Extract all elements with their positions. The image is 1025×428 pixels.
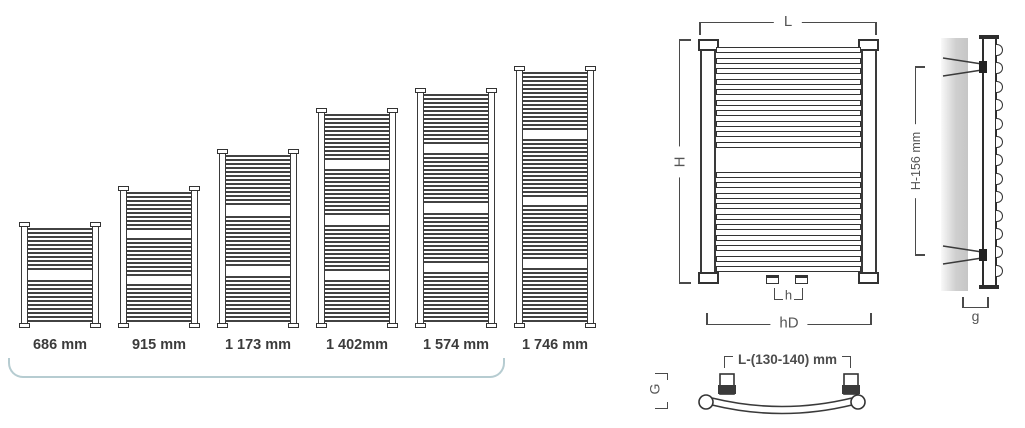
radiator-bar: [424, 320, 488, 322]
radiator-bar: [424, 312, 488, 314]
radiator-bar: [523, 237, 587, 239]
radiator-bar: [226, 292, 290, 294]
radiator-bar: [523, 195, 587, 197]
radiator-bar: [424, 201, 488, 203]
bar-group: [226, 276, 290, 322]
radiator-bar: [226, 280, 290, 282]
radiator-bar: [226, 260, 290, 262]
radiator-bar: [226, 248, 290, 250]
radiator-bar: [325, 320, 389, 322]
radiator-bar: [523, 296, 587, 298]
radiator-bar: [127, 216, 191, 218]
radiator-bar: [325, 308, 389, 310]
radiator-bar: [226, 199, 290, 201]
radiator-bar: [226, 163, 290, 165]
radiator-bar: [226, 320, 290, 322]
radiator-bar: [325, 257, 389, 259]
radiator-bar: [424, 130, 488, 132]
radiator-bar: [226, 216, 290, 218]
connection-stub: [795, 275, 808, 284]
rail: [318, 112, 325, 324]
radiator-bar: [226, 244, 290, 246]
radiator-bar: [424, 169, 488, 171]
radiator-bar: [325, 201, 389, 203]
dimension-label-h: h: [783, 287, 794, 302]
radiator-bar: [325, 213, 389, 215]
radiator-bar: [325, 193, 389, 195]
radiator-bar: [127, 192, 191, 194]
radiator-bar: [325, 296, 389, 298]
bar-group: [127, 192, 191, 230]
radiator-bar: [424, 261, 488, 263]
rail-cap: [486, 323, 497, 328]
rail-cap: [415, 323, 426, 328]
radiator-bar: [523, 191, 587, 193]
radiator-bar: [424, 118, 488, 120]
radiator-bar: [28, 308, 92, 310]
radiator-bar: [716, 193, 861, 199]
radiator-bar: [226, 300, 290, 302]
rail-cap: [19, 222, 30, 227]
radiator-bar: [325, 197, 389, 199]
radiator-bar: [424, 177, 488, 179]
radiator-bar: [28, 316, 92, 318]
radiator-bar: [28, 312, 92, 314]
radiator-bar: [424, 94, 488, 96]
radiator-bar: [523, 205, 587, 207]
radiator-bar: [523, 100, 587, 102]
radiator-bar: [226, 256, 290, 258]
bar-group: [226, 216, 290, 266]
dimension-height-H: H: [679, 39, 692, 284]
radiator-bar: [424, 280, 488, 282]
radiator-bar: [523, 143, 587, 145]
radiator-bar: [127, 284, 191, 286]
radiator-bar: [716, 47, 861, 53]
radiator-bar: [226, 155, 290, 157]
radiator-bar: [424, 253, 488, 255]
radiator-bar: [325, 253, 389, 255]
radiator-bar: [523, 245, 587, 247]
radiator-bar: [28, 292, 92, 294]
radiator-bar: [523, 167, 587, 169]
radiator-bar: [226, 304, 290, 306]
radiator-bar: [226, 195, 290, 197]
radiator-bar: [127, 270, 191, 272]
radiator-bar: [226, 191, 290, 193]
radiator-bar: [424, 284, 488, 286]
radiator-bar: [325, 154, 389, 156]
radiator-bar: [523, 268, 587, 270]
radiator-bar: [325, 312, 389, 314]
rail: [389, 112, 396, 324]
radiator-bar: [716, 172, 861, 178]
dimension-depth-g: g: [962, 297, 989, 308]
radiator-bar: [716, 256, 861, 262]
rail-cap: [90, 323, 101, 328]
radiator-bar: [325, 284, 389, 286]
radiator-bar: [325, 173, 389, 175]
bar-group: [523, 205, 587, 259]
bar-area: [28, 228, 92, 322]
radiator-bar: [28, 264, 92, 266]
bar-group: [325, 280, 389, 322]
rail: [417, 92, 424, 324]
rail: [587, 70, 594, 324]
radiator-bar: [325, 225, 389, 227]
radiator-bar: [226, 296, 290, 298]
radiator-bar: [226, 159, 290, 161]
rail-cap: [698, 272, 719, 284]
radiator-bar: [424, 173, 488, 175]
radiator-bar: [127, 238, 191, 240]
radiator-bar: [523, 316, 587, 318]
radiator-bar: [127, 220, 191, 222]
radiator-bar: [523, 320, 587, 322]
rail: [219, 153, 226, 324]
radiator-bar: [523, 292, 587, 294]
radiator-bar: [523, 280, 587, 282]
radiator-bar: [325, 138, 389, 140]
radiator-bar: [424, 138, 488, 140]
radiator-bar: [325, 158, 389, 160]
bar-group: [716, 172, 861, 273]
radiator-bar: [523, 120, 587, 122]
radiator-bar: [226, 203, 290, 205]
radiator-bar: [424, 257, 488, 259]
radiator-bar: [325, 316, 389, 318]
radiator-bar: [325, 189, 389, 191]
bar-group: [424, 213, 488, 263]
rail: [488, 92, 495, 324]
radiator-bar: [226, 316, 290, 318]
radiator-bar: [424, 217, 488, 219]
radiator-bar: [716, 245, 861, 251]
radiator-bar: [325, 241, 389, 243]
radiator-bar: [226, 284, 290, 286]
radiator-bar: [325, 150, 389, 152]
rail: [191, 190, 198, 324]
rail-cap: [585, 323, 596, 328]
bar-area: [226, 155, 290, 322]
size-label: 1 574 mm: [423, 337, 489, 353]
radiator-bar: [127, 228, 191, 230]
wall-mount-brackets: [935, 30, 1005, 300]
radiator-bar: [424, 292, 488, 294]
radiator-bar: [424, 296, 488, 298]
bar-group: [424, 94, 488, 144]
radiator-bar: [127, 304, 191, 306]
radiator-bar: [226, 308, 290, 310]
bar-group: [424, 272, 488, 322]
radiator-bar: [523, 108, 587, 110]
radiator-bar: [716, 182, 861, 188]
bar-group: [226, 155, 290, 205]
radiator-bar: [325, 249, 389, 251]
radiator-bar: [226, 276, 290, 278]
radiator-bar: [325, 265, 389, 267]
radiator-bar: [28, 280, 92, 282]
radiator-bar: [28, 228, 92, 230]
rail-cap: [288, 149, 299, 154]
radiator-bar: [523, 217, 587, 219]
radiator-bar: [226, 224, 290, 226]
radiator-bar: [716, 214, 861, 220]
radiator-bar: [424, 110, 488, 112]
radiator-bar: [127, 196, 191, 198]
radiator-bar: [226, 171, 290, 173]
radiator-bar: [523, 276, 587, 278]
radiator-bar: [325, 146, 389, 148]
rail-cap: [19, 323, 30, 328]
radiator-bar: [127, 274, 191, 276]
dimension-label-H: H: [672, 146, 689, 177]
dimension-label-bow-depth: G: [646, 384, 662, 395]
bar-area: [716, 47, 861, 272]
bar-group: [523, 268, 587, 322]
radiator-bar: [523, 163, 587, 165]
radiator-bar: [127, 316, 191, 318]
radiator-bar: [325, 292, 389, 294]
radiator-bar: [127, 204, 191, 206]
radiator-bar: [424, 193, 488, 195]
size-label: 1 402mm: [326, 337, 388, 353]
bar-group: [424, 153, 488, 203]
radiator-bar: [424, 165, 488, 167]
radiator-bar: [28, 284, 92, 286]
radiator-bar: [127, 242, 191, 244]
radiator-bar: [127, 208, 191, 210]
radiator-bar: [523, 124, 587, 126]
radiator-bar: [523, 233, 587, 235]
bar-group: [127, 238, 191, 276]
dimension-pipe-spacing-h: h: [774, 288, 803, 300]
radiator-bar: [325, 233, 389, 235]
radiator-bar: [523, 300, 587, 302]
radiator-bar: [424, 114, 488, 116]
bar-group: [28, 280, 92, 322]
rail: [290, 153, 297, 324]
radiator-dimension-diagram: 686 mm915 mm1 173 mm1 402mm1 574 mm1 746…: [0, 0, 1025, 428]
radiator-bar: [127, 250, 191, 252]
radiator-bar: [424, 272, 488, 274]
dimension-connection-hD: hD: [706, 313, 872, 325]
radiator-bar: [325, 205, 389, 207]
rail-cap: [217, 149, 228, 154]
radiator-bar: [28, 232, 92, 234]
rail-cap: [118, 186, 129, 191]
g-mark-bottom: [655, 402, 668, 409]
radiator-bar: [127, 308, 191, 310]
rail-cap: [486, 88, 497, 93]
radiator-bar: [325, 130, 389, 132]
radiator-size-figure: 1 402mm: [318, 108, 396, 328]
rail-cap: [288, 323, 299, 328]
rail-cap: [514, 66, 525, 71]
radiator-size-figure: 686 mm: [21, 222, 99, 328]
radiator-bar: [424, 157, 488, 159]
radiator-bar: [523, 249, 587, 251]
dimension-label-H-156: H-156 mm: [909, 124, 923, 198]
rail-cap: [118, 323, 129, 328]
right-rail: [861, 48, 877, 277]
bar-area: [127, 192, 191, 322]
radiator-bar: [523, 104, 587, 106]
radiator-bar: [226, 240, 290, 242]
radiator-bar: [28, 236, 92, 238]
radiator-bar: [127, 292, 191, 294]
radiator-bar: [325, 288, 389, 290]
rail: [92, 226, 99, 324]
radiator-size-figure: 1 746 mm: [516, 66, 594, 328]
radiator-bar: [127, 224, 191, 226]
radiator-bar: [325, 181, 389, 183]
radiator-bar: [28, 320, 92, 322]
bar-group: [127, 284, 191, 322]
radiator-bar: [523, 112, 587, 114]
front-view-radiator: [700, 39, 877, 284]
radiator-bar: [424, 308, 488, 310]
radiator-size-figure: 1 574 mm: [417, 88, 495, 328]
radiator-bar: [424, 197, 488, 199]
radiator-bar: [424, 221, 488, 223]
dimension-label-g: g: [972, 308, 980, 324]
corner-mark-right: [842, 356, 851, 368]
rail: [120, 190, 127, 324]
radiator-bar: [523, 304, 587, 306]
rail: [516, 70, 523, 324]
radiator-bar: [127, 300, 191, 302]
radiator-bar: [716, 224, 861, 230]
radiator-bar: [226, 220, 290, 222]
radiator-bar: [523, 179, 587, 181]
radiator-bar: [716, 121, 861, 127]
rail-cap: [90, 222, 101, 227]
radiator-bar: [716, 142, 861, 148]
radiator-bar: [424, 245, 488, 247]
radiator-bar: [523, 308, 587, 310]
radiator-bar: [424, 237, 488, 239]
rail-cap: [585, 66, 596, 71]
radiator-bar: [523, 272, 587, 274]
radiator-bar: [325, 304, 389, 306]
rail-cap: [858, 39, 879, 51]
radiator-bar: [127, 266, 191, 268]
radiator-bar: [523, 72, 587, 74]
radiator-bar: [226, 236, 290, 238]
radiator-bar: [127, 246, 191, 248]
radiator-bar: [523, 147, 587, 149]
connection-stub: [766, 275, 779, 284]
size-label: 915 mm: [132, 337, 186, 353]
radiator-bar: [523, 159, 587, 161]
radiator-bar: [523, 88, 587, 90]
radiator-size-figure: 915 mm: [120, 186, 198, 328]
radiator-bar: [127, 320, 191, 322]
rail-cap: [514, 323, 525, 328]
radiator-bar: [226, 232, 290, 234]
bar-area: [325, 114, 389, 322]
radiator-bar: [424, 316, 488, 318]
dimension-label-L: L: [774, 13, 802, 30]
dimension-label-hD: hD: [770, 314, 807, 331]
radiator-bar: [523, 76, 587, 78]
radiator-bar: [523, 96, 587, 98]
radiator-bar: [127, 258, 191, 260]
radiator-bar: [523, 80, 587, 82]
radiator-bar: [716, 131, 861, 137]
radiator-bar: [325, 209, 389, 211]
radiator-bar: [523, 213, 587, 215]
rail: [21, 226, 28, 324]
radiator-bar: [424, 153, 488, 155]
radiator-bar: [716, 68, 861, 74]
radiator-bar: [424, 229, 488, 231]
rail-cap: [858, 272, 879, 284]
radiator-bar: [523, 183, 587, 185]
radiator-bar: [523, 175, 587, 177]
rail-cap: [189, 323, 200, 328]
radiator-bar: [424, 106, 488, 108]
radiator-bar: [226, 179, 290, 181]
size-group-bracket: [8, 358, 505, 378]
radiator-bar: [325, 134, 389, 136]
dimension-bracket-height: H-156 mm: [915, 66, 926, 256]
radiator-bar: [28, 244, 92, 246]
radiator-bar: [28, 288, 92, 290]
radiator-bar: [424, 185, 488, 187]
radiator-bar: [523, 128, 587, 130]
bar-group: [28, 228, 92, 270]
radiator-bar: [325, 300, 389, 302]
size-label: 1 746 mm: [522, 337, 588, 353]
rail-cap: [316, 108, 327, 113]
radiator-bar: [325, 122, 389, 124]
bar-group: [325, 225, 389, 271]
radiator-bar: [523, 221, 587, 223]
radiator-bar: [325, 280, 389, 282]
radiator-bar: [127, 212, 191, 214]
g-mark-top: [655, 373, 668, 380]
radiator-bar: [28, 300, 92, 302]
rail-cap: [316, 323, 327, 328]
radiator-bar: [325, 169, 389, 171]
radiator-bar: [523, 116, 587, 118]
radiator-bar: [716, 58, 861, 64]
radiator-bar: [424, 189, 488, 191]
radiator-bar: [424, 126, 488, 128]
rail-cap: [387, 323, 398, 328]
dimension-width-L: L: [699, 22, 877, 35]
radiator-bar: [523, 151, 587, 153]
radiator-bar: [523, 312, 587, 314]
radiator-bar: [424, 134, 488, 136]
radiator-bar: [28, 296, 92, 298]
radiator-bar: [424, 102, 488, 104]
radiator-bar: [28, 248, 92, 250]
radiator-bar: [523, 139, 587, 141]
radiator-bar: [523, 284, 587, 286]
radiator-bar: [226, 167, 290, 169]
radiator-bar: [325, 142, 389, 144]
radiator-bar: [28, 304, 92, 306]
size-label: 686 mm: [33, 337, 87, 353]
radiator-bar: [424, 233, 488, 235]
radiator-bar: [28, 268, 92, 270]
radiator-bar: [127, 254, 191, 256]
radiator-bar: [424, 300, 488, 302]
radiator-bar: [325, 114, 389, 116]
